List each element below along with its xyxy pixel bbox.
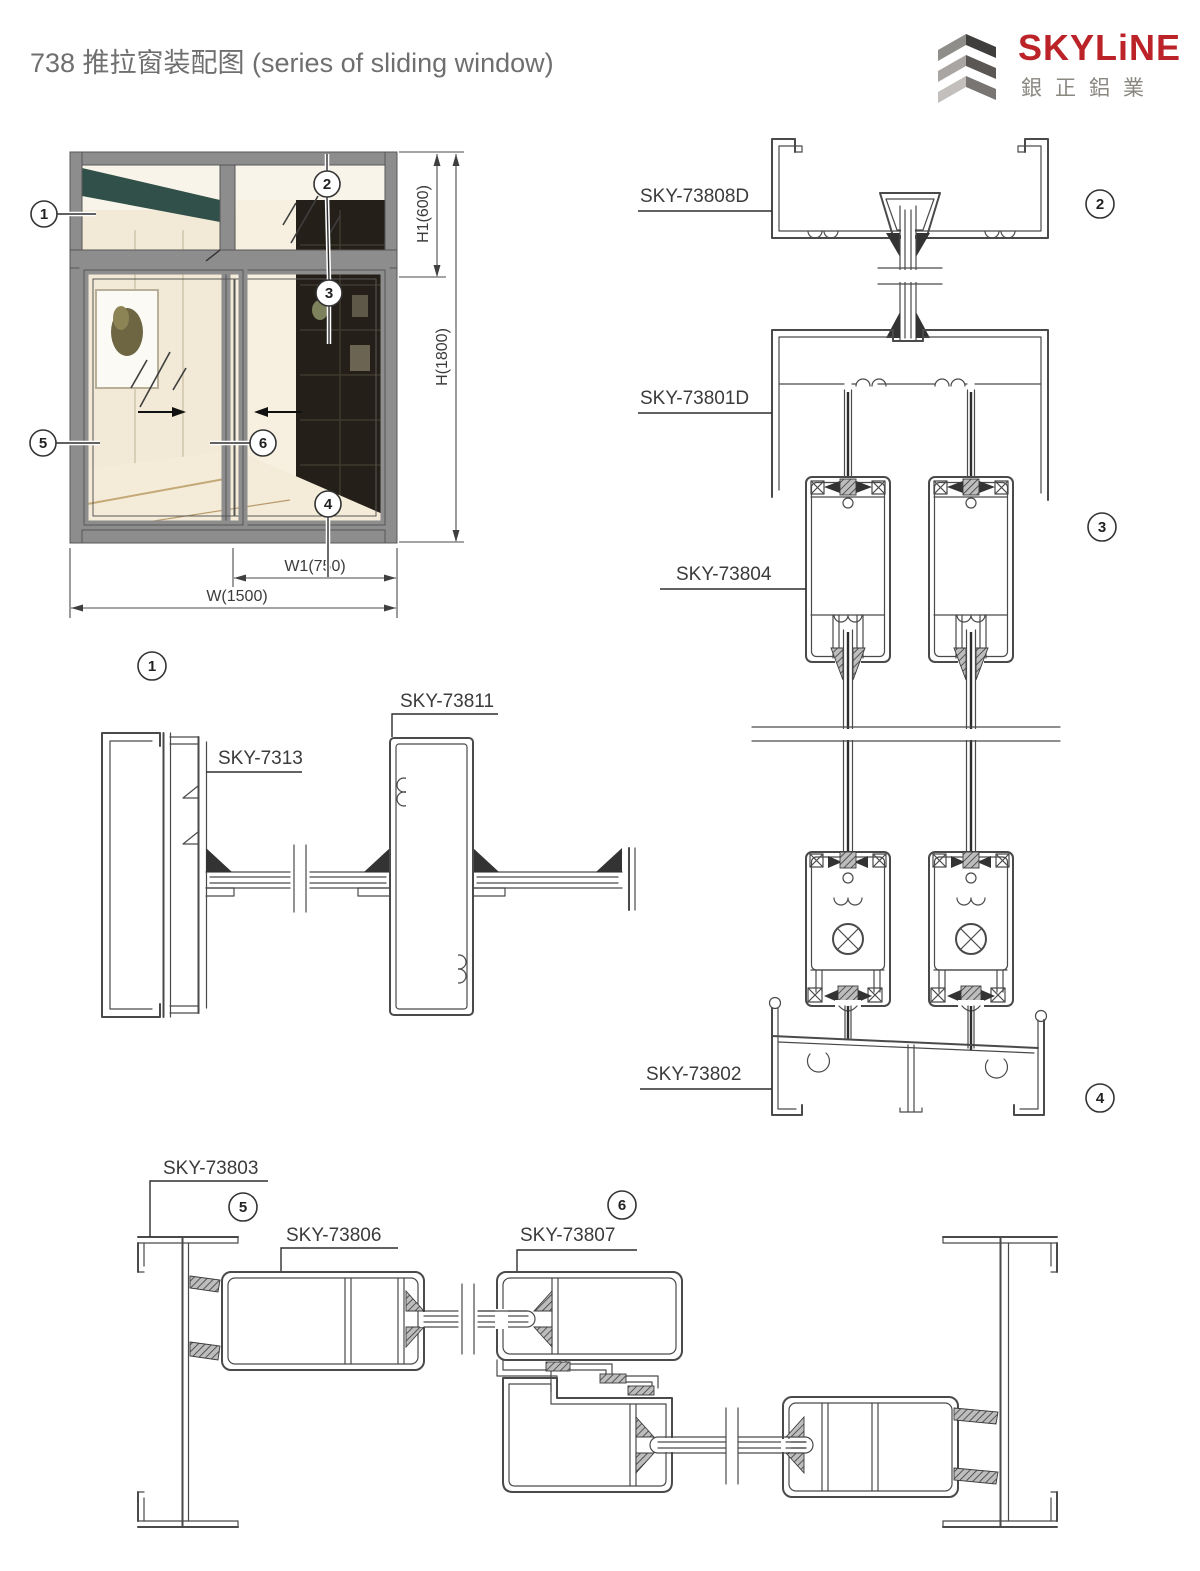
sash-interlock-73807 — [478, 1272, 682, 1398]
part-label-jamb-fixed: SKY-7313 — [218, 748, 303, 769]
track-fins — [845, 390, 975, 477]
skyline-logo: SKYLiNE 銀正鋁業 — [938, 27, 1181, 103]
section-balloon-5: 5 — [229, 1193, 257, 1221]
section-balloon-4: 4 — [1086, 1084, 1114, 1112]
svg-text:2: 2 — [1096, 196, 1104, 213]
section-balloon-2: 2 — [1086, 190, 1114, 218]
section-1-glass — [206, 845, 635, 912]
balloon-4: 4 — [315, 491, 341, 517]
sliding-jamb-right — [943, 1237, 1057, 1527]
svg-text:1: 1 — [148, 658, 156, 675]
assembly-drawing: 738 推拉窗装配图 (series of sliding window) SK… — [0, 0, 1200, 1571]
vertical-section-details: SKY-73808D SKY-73801D SKY-73804 SKY-7380… — [638, 139, 1116, 1115]
svg-text:5: 5 — [239, 1199, 247, 1216]
svg-text:4: 4 — [324, 496, 333, 513]
page-title: 738 推拉窗装配图 (series of sliding window) — [30, 48, 554, 78]
section-balloon-6: 6 — [608, 1191, 636, 1219]
section-5-glass — [420, 1284, 535, 1354]
svg-text:1: 1 — [40, 206, 48, 223]
part-label-jamb-sliding: SKY-73803 — [163, 1158, 258, 1179]
sash-lower-sections — [806, 852, 1013, 1050]
right-sash-stile — [781, 1397, 998, 1497]
dim-w1: W1(750) — [284, 558, 345, 575]
svg-text:2: 2 — [323, 176, 331, 193]
section-balloon-1: 1 — [138, 652, 166, 680]
sash-stile-73806 — [222, 1272, 424, 1370]
part-label-sash-vertical: SKY-73804 — [676, 564, 772, 585]
elevation-drawing: H1(600) H(1800) W1(750) W(1500) 1 2 3 — [30, 152, 464, 618]
part-label-head-frame: SKY-73808D — [640, 186, 749, 207]
svg-text:6: 6 — [259, 435, 267, 452]
header: 738 推拉窗装配图 (series of sliding window) SK… — [30, 27, 1181, 103]
svg-text:3: 3 — [1098, 519, 1106, 536]
transom-bar — [70, 250, 397, 268]
part-label-mullion: SKY-73811 — [400, 691, 494, 712]
balloon-3: 3 — [316, 280, 342, 306]
part-label-sash-stile: SKY-73806 — [286, 1225, 381, 1246]
balloon-6: 6 — [250, 430, 276, 456]
dim-h1: H1(600) — [415, 185, 432, 243]
balloon-5: 5 — [30, 430, 56, 456]
brand-text: SKYLiNE — [1018, 27, 1181, 68]
section-balloon-3: 3 — [1088, 513, 1116, 541]
balloon-1: 1 — [31, 201, 57, 227]
balloon-2: 2 — [314, 171, 340, 197]
company-text: 銀正鋁業 — [1021, 77, 1157, 100]
transom-profile — [772, 330, 1048, 500]
dim-w: W(1500) — [206, 588, 267, 605]
svg-text:3: 3 — [325, 285, 333, 302]
fixed-glass — [876, 206, 944, 341]
dim-h: H(1800) — [434, 328, 451, 386]
upper-mullion — [220, 165, 235, 250]
svg-text:5: 5 — [39, 435, 47, 452]
svg-text:4: 4 — [1096, 1090, 1105, 1107]
section-1-detail: 1 — [102, 652, 635, 1017]
svg-text:6: 6 — [618, 1197, 626, 1214]
sash-upper-sections — [806, 477, 1013, 680]
part-label-sash-interlock: SKY-73807 — [520, 1225, 615, 1246]
sill-profile — [770, 998, 1047, 1116]
sash-glass — [750, 630, 1060, 855]
part-label-sill: SKY-73802 — [646, 1064, 741, 1085]
sections-5-6-detail: 5 6 — [138, 1158, 1057, 1527]
chevron-logo-icon — [938, 34, 996, 103]
part-label-transom: SKY-73801D — [640, 388, 749, 409]
